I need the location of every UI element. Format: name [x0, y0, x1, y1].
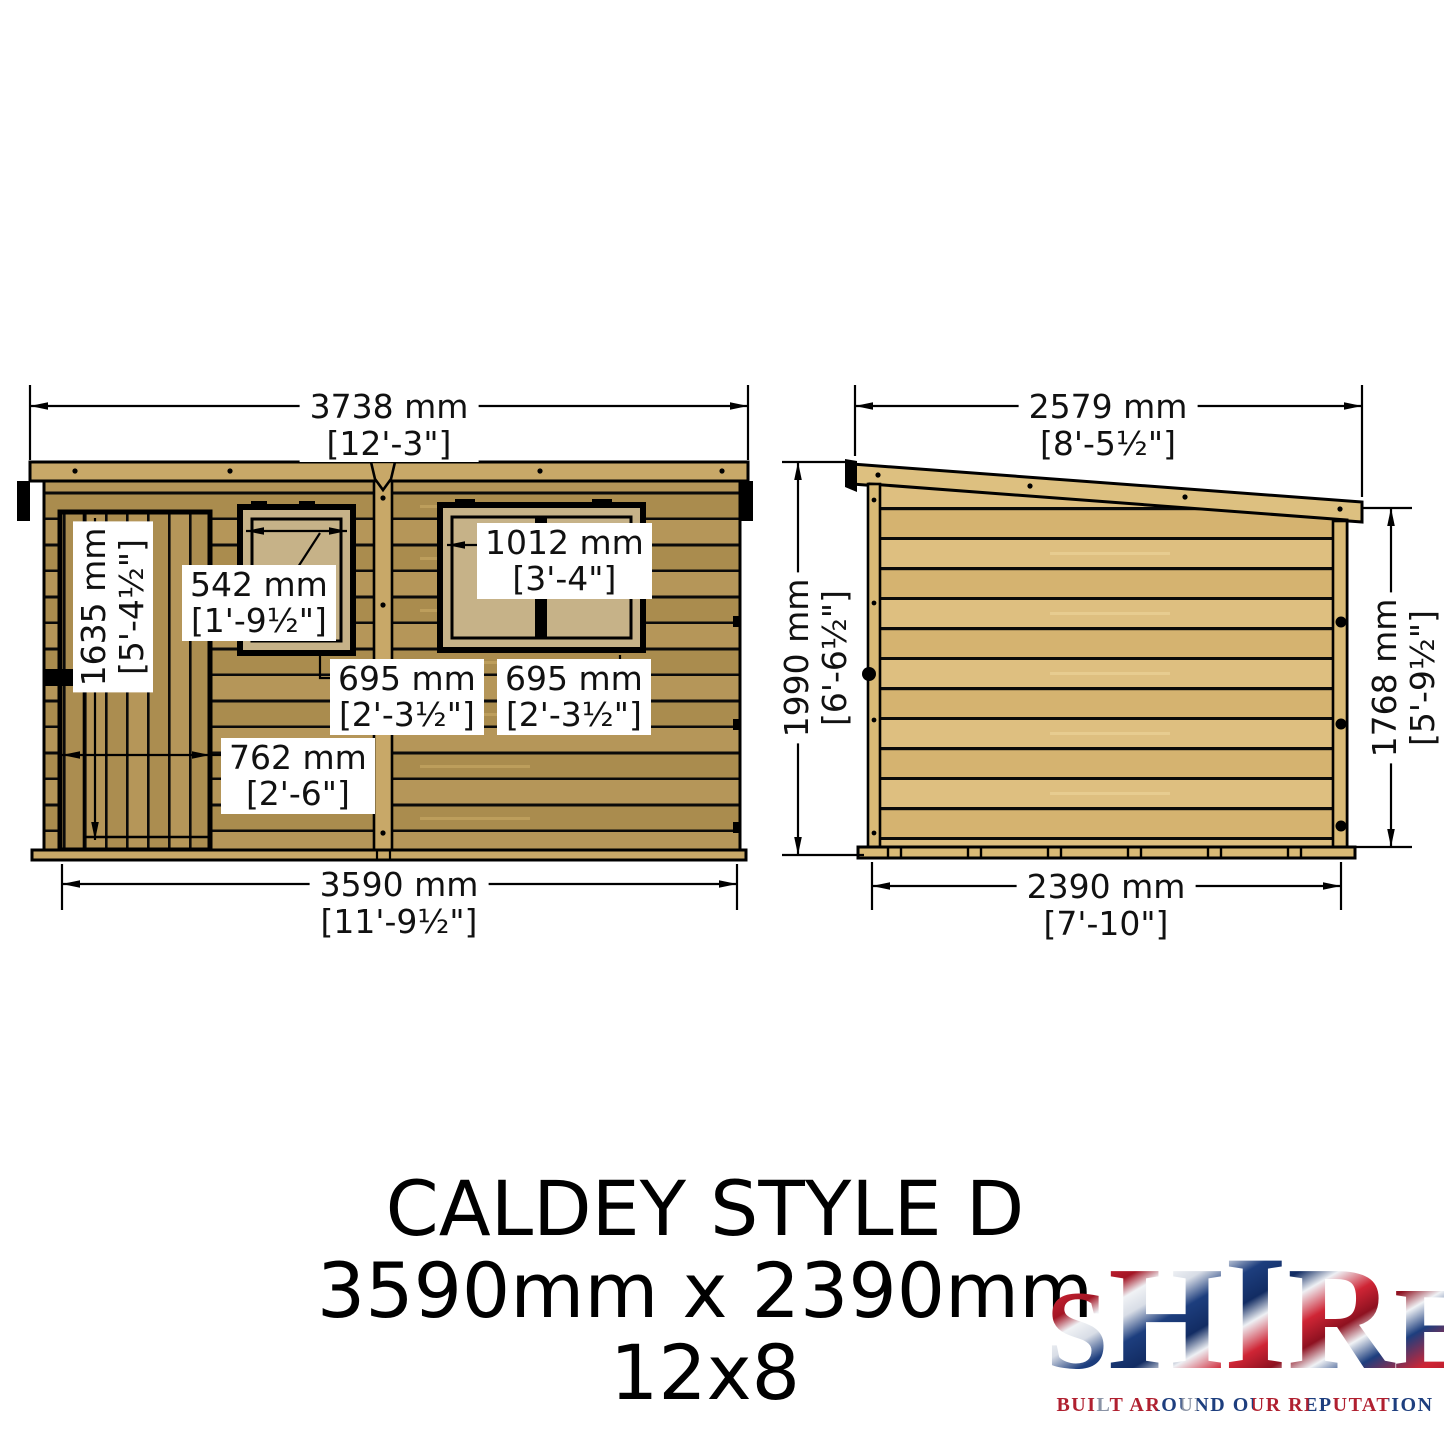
window2-height-label: 695 mm [2'-3½"] — [497, 659, 651, 735]
shed-technical-drawing: 3738 mm [12'-3"] 3590 mm [11'-9½"] 1635 … — [0, 0, 1445, 1445]
logo-letter: E — [1394, 1263, 1445, 1394]
logo-letter: H — [1108, 1237, 1223, 1401]
side-left-corner-trim — [868, 484, 880, 847]
front-overall-width-label: 3738 mm [12'-3"] — [300, 388, 479, 462]
side-roof-left-cap — [845, 459, 857, 492]
side-overall-depth-label: 2579 mm [8'-5½"] — [1019, 388, 1198, 462]
door-width-label: 762 mm [2'-6"] — [221, 738, 375, 814]
window2-width-label: 1012 mm [3'-4"] — [477, 523, 652, 599]
side-base-depth-label: 2390 mm [7'-10"] — [1017, 868, 1196, 942]
logo-letter: I — [1223, 1223, 1287, 1404]
product-dimensions: 3590mm x 2390mm — [317, 1250, 1093, 1332]
drawing-title: CALDEY STYLE D 3590mm x 2390mm 12x8 — [317, 1168, 1093, 1414]
door-height-label: 1635 mm [5'-4½"] — [73, 522, 153, 693]
shire-logo: SHIRE BUILT AROUND OUR REPUTATION — [1046, 1244, 1444, 1417]
side-floor-bearer-rail — [858, 847, 1355, 858]
roof-left-bracket — [17, 481, 30, 521]
shire-logo-tagline: BUILT AROUND OUR REPUTATION — [1046, 1394, 1444, 1417]
window1-width-label: 542 mm [1'-9½"] — [182, 565, 336, 641]
side-height-right-label: 1768 mm [5'-9½"] — [1364, 593, 1444, 764]
logo-letter: S — [1046, 1269, 1108, 1393]
side-wall — [870, 484, 1347, 847]
shire-logo-wordmark: SHIRE — [1046, 1244, 1444, 1392]
roof-right-bracket — [740, 481, 753, 521]
front-base-width-label: 3590 mm [11'-9½"] — [310, 866, 489, 940]
product-name: CALDEY STYLE D — [317, 1168, 1093, 1250]
side-right-corner-trim — [1333, 521, 1347, 847]
window1-height-label: 695 mm [2'-3½"] — [330, 659, 484, 735]
side-height-left-label: 1990 mm [6'-6½"] — [776, 573, 856, 744]
side-view-drawing — [782, 385, 1412, 910]
side-door-handle — [862, 667, 876, 681]
logo-letter: R — [1287, 1237, 1394, 1401]
product-size-code: 12x8 — [317, 1332, 1093, 1414]
